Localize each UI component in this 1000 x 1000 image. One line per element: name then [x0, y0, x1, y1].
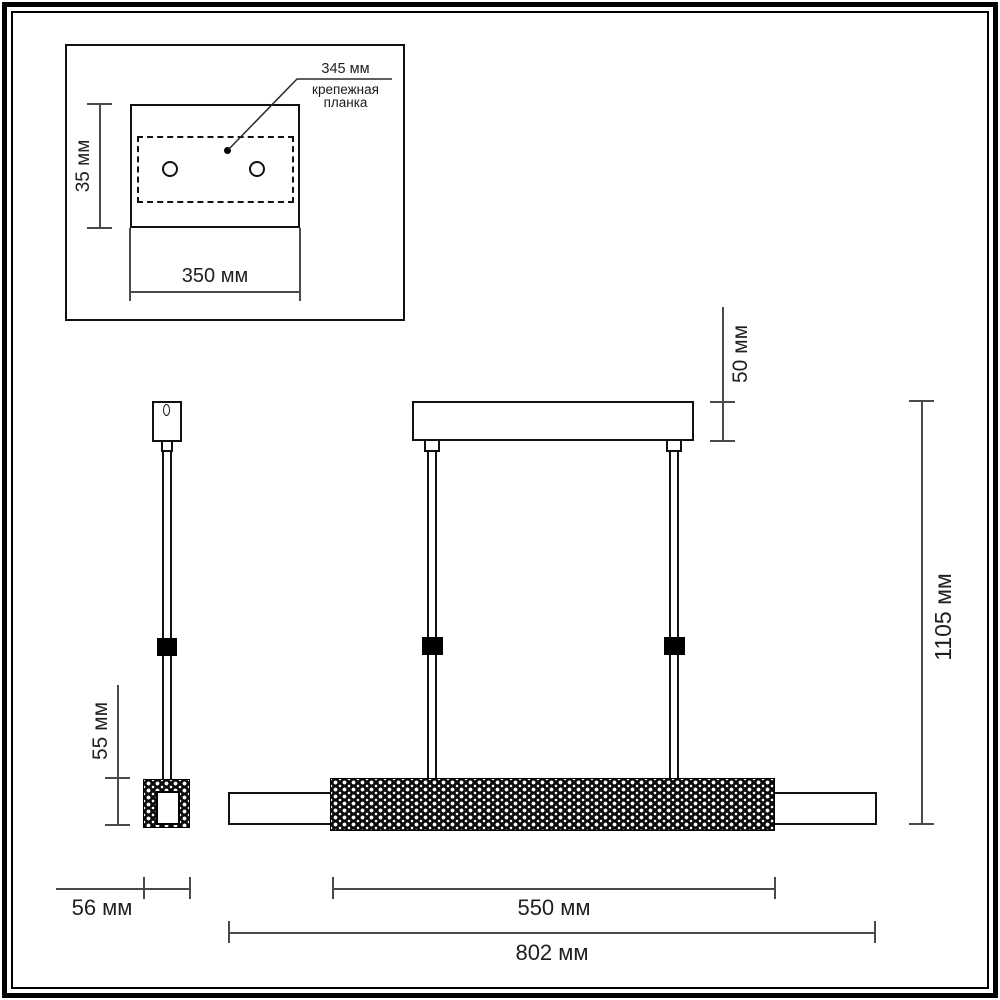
dim-tick [105, 824, 130, 826]
bracket-length-label: 345 мм [293, 61, 398, 76]
endcap-width-label: 56 мм [47, 895, 157, 921]
drawing-canvas: 345 мм крепежная планка 35 мм 350 мм 55 … [0, 0, 1000, 1000]
dim-tick [909, 823, 934, 825]
dim-total-length-line [229, 932, 876, 934]
front-rod-bracket-left [424, 441, 440, 452]
mounting-hole-icon [163, 404, 170, 416]
canopy-height-label: 50 мм [729, 309, 753, 399]
side-endcap-inner [156, 791, 180, 825]
front-led-bar-crystal [330, 778, 775, 831]
side-rod-upper [162, 452, 172, 638]
endcap-height-label: 55 мм [90, 686, 112, 776]
front-canopy [412, 401, 694, 441]
side-rod-lower [162, 656, 172, 779]
screw-hole-left [162, 161, 178, 177]
front-endcap-right [773, 792, 877, 825]
dim-tick [774, 877, 776, 899]
led-section-length-label: 550 мм [489, 895, 619, 921]
front-endcap-left [228, 792, 332, 825]
bracket-caption-line2: планка [293, 97, 398, 110]
dim-tick [710, 401, 735, 403]
front-rod-bracket-right [666, 441, 682, 452]
front-rod-connector-right [664, 637, 685, 655]
dim-led-length-line [333, 888, 775, 890]
plate-height-label: 35 мм [74, 126, 94, 206]
total-length-label: 802 мм [487, 940, 617, 966]
dim-tick [87, 227, 112, 229]
front-rod-right-upper [669, 452, 679, 637]
dim-endcap-width-line [56, 888, 190, 890]
screw-hole-right [249, 161, 265, 177]
side-rod-connector [157, 638, 177, 656]
dim-endcap-height-line [117, 685, 119, 825]
front-rod-connector-left [422, 637, 443, 655]
total-height-label: 1105 мм [930, 562, 956, 672]
dim-tick [332, 877, 334, 899]
dim-tick [105, 777, 130, 779]
dim-total-height-line [921, 401, 923, 824]
dim-tick [87, 103, 112, 105]
dim-tick [909, 400, 934, 402]
dim-tick [874, 921, 876, 943]
front-rod-left-upper [427, 452, 437, 637]
dim-plate-height-line [99, 104, 101, 228]
side-rod-bracket [161, 442, 173, 452]
dim-plate-width-line [130, 291, 300, 293]
bracket-caption: крепежная планка [293, 84, 398, 109]
dim-tick [228, 921, 230, 943]
dim-tick [710, 440, 735, 442]
front-rod-left-lower [427, 655, 437, 779]
dim-canopy-height-line [722, 307, 724, 442]
dim-tick [189, 877, 191, 899]
plate-width-label: 350 мм [150, 264, 280, 288]
front-rod-right-lower [669, 655, 679, 779]
